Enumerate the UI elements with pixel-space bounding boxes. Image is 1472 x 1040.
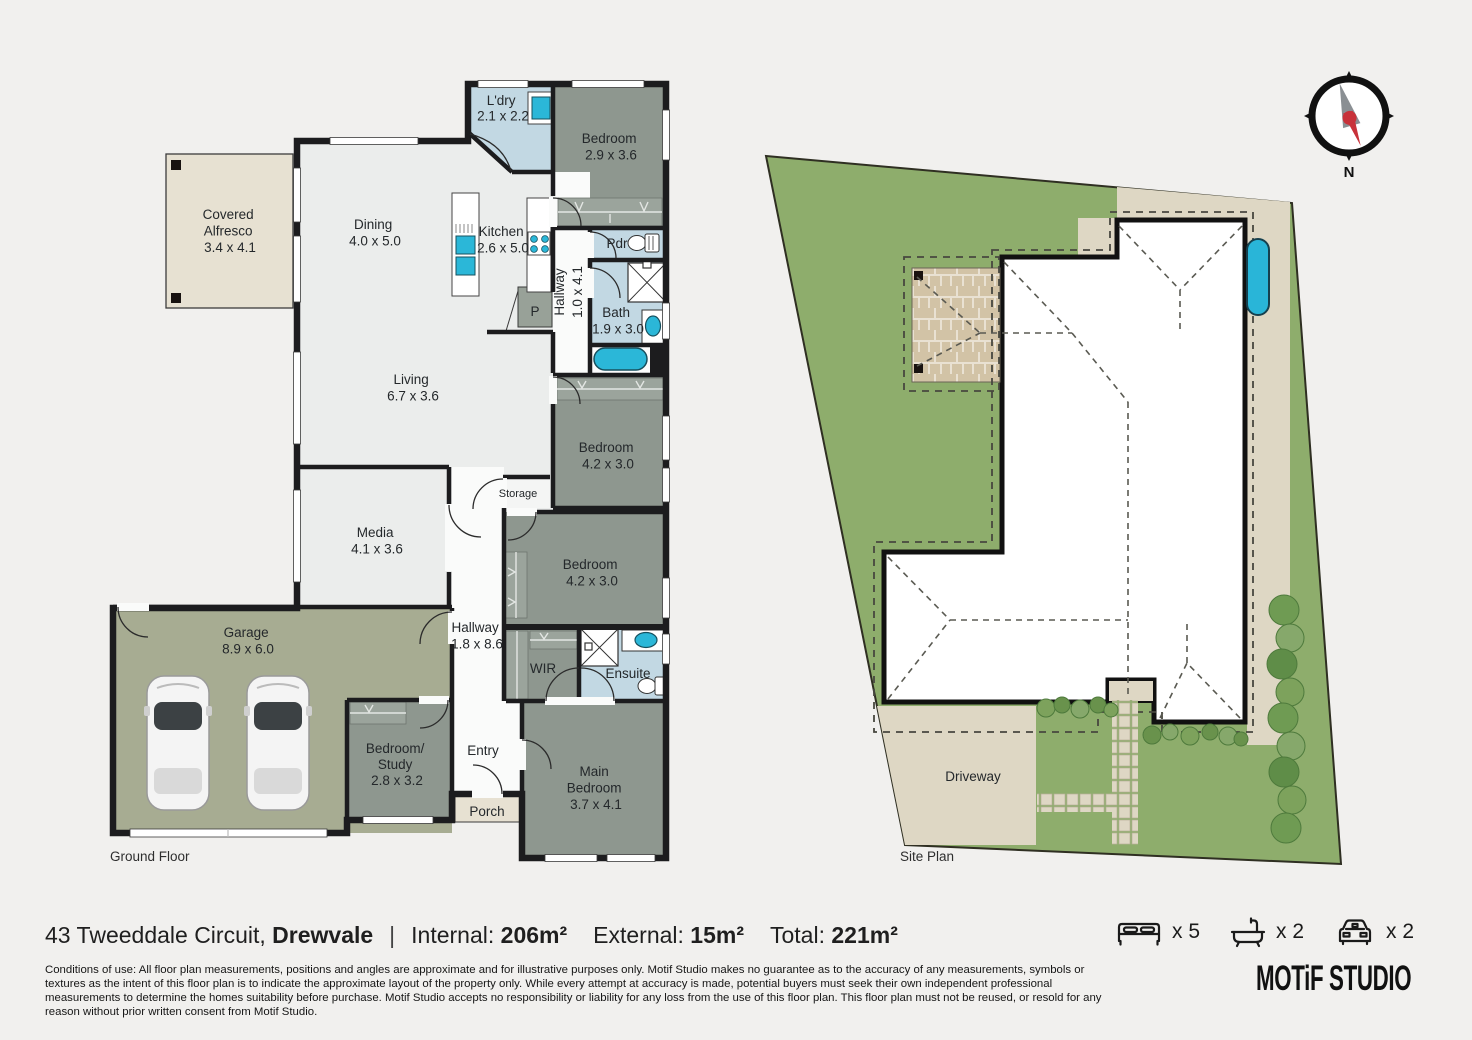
compass-north-label: N — [1344, 164, 1355, 181]
room-label-pdr: Pdr — [606, 236, 628, 251]
compass-icon: N — [1304, 71, 1394, 181]
room-label-alfresco: Covered Alfresco 3.4 x 4.1 — [203, 207, 258, 255]
bath-icon — [1230, 916, 1266, 948]
car-top-view-2 — [244, 676, 312, 810]
room-label-hall1-name: Hallway — [552, 268, 567, 316]
water-tank-icon — [1247, 239, 1269, 315]
room-label-hall1-dims: 1.0 x 4.1 — [570, 266, 585, 318]
shower-icon-bath — [628, 261, 666, 302]
room-label-bed1: Bedroom 2.9 x 3.6 — [582, 131, 641, 163]
bed-stat: x 5 — [1116, 917, 1200, 947]
garage-door-opening — [130, 829, 327, 837]
robe-bed3 — [505, 552, 527, 618]
room-label-garage: Garage 8.9 x 6.0 — [222, 625, 274, 657]
car-icon — [1334, 917, 1376, 947]
robe-bed1 — [558, 198, 662, 226]
bath-stat: x 2 — [1230, 916, 1304, 948]
address-suburb: Drewvale — [272, 922, 373, 948]
room-label-porch: Porch — [469, 804, 504, 819]
bed-icon — [1116, 917, 1162, 947]
site-porch-step — [1108, 680, 1154, 702]
ground-floor-caption: Ground Floor — [110, 849, 190, 864]
kitchen-bench — [527, 198, 551, 292]
external-label: External: — [593, 922, 690, 948]
room-label-entry: Entry — [467, 743, 499, 758]
bath-count: x 2 — [1276, 920, 1304, 944]
car-top-view-1 — [144, 676, 212, 810]
brand-logo: MOTiF STUDIO — [1256, 958, 1411, 999]
address-separator: | — [389, 922, 395, 948]
room-label-bed3: Bedroom 4.2 x 3.0 — [563, 557, 622, 589]
floorplan-canvas: Covered Alfresco 3.4 x 4.1 Dining 4.0 x … — [0, 0, 1472, 1040]
site-plan: Driveway Site Plan — [766, 156, 1341, 864]
ground-floor-plan: Covered Alfresco 3.4 x 4.1 Dining 4.0 x … — [110, 81, 670, 865]
room-label-living: Living 6.7 x 3.6 — [387, 372, 439, 404]
room-label-kitchen: Kitchen 2.6 x 5.0 — [477, 224, 529, 256]
room-label-media: Media 4.1 x 3.6 — [351, 525, 403, 557]
room-label-storage: Storage — [499, 488, 538, 500]
kitchen-island — [452, 193, 479, 296]
robe-study — [350, 702, 406, 724]
room-label-hall2: Hallway 1.8 x 8.6 — [451, 620, 503, 652]
site-path-vertical — [1112, 700, 1138, 845]
shower-icon-ensuite — [581, 629, 618, 666]
external-value: 15m² — [690, 922, 744, 948]
bathtub-icon — [594, 345, 666, 373]
site-plan-caption: Site Plan — [900, 849, 954, 864]
address-street: 43 Tweeddale Circuit, — [45, 922, 272, 948]
address-line: 43 Tweeddale Circuit, Drewvale|Internal:… — [45, 922, 898, 949]
robe-bed2 — [557, 378, 663, 400]
room-label-wir: WIR — [530, 661, 556, 676]
property-stats: x 5 x 2 x 2 — [1116, 916, 1444, 948]
disclaimer-text: Conditions of use: All floor plan measur… — [45, 963, 1107, 1020]
room-label-bed2: Bedroom 4.2 x 3.0 — [579, 440, 638, 472]
car-stat: x 2 — [1334, 917, 1414, 947]
car-count: x 2 — [1386, 920, 1414, 944]
site-path-horizontal — [1037, 793, 1113, 812]
vanity-icon-ensuite — [622, 630, 666, 651]
internal-value: 206m² — [501, 922, 567, 948]
washing-machine-icon — [528, 92, 554, 124]
total-label: Total: — [770, 922, 831, 948]
driveway-label: Driveway — [945, 769, 1001, 784]
room-label-pantry: P — [530, 304, 539, 319]
bed-count: x 5 — [1172, 920, 1200, 944]
internal-label: Internal: — [411, 922, 501, 948]
total-value: 221m² — [831, 922, 897, 948]
room-label-dining: Dining 4.0 x 5.0 — [349, 217, 401, 249]
room-label-ensuite: Ensuite — [605, 666, 650, 681]
